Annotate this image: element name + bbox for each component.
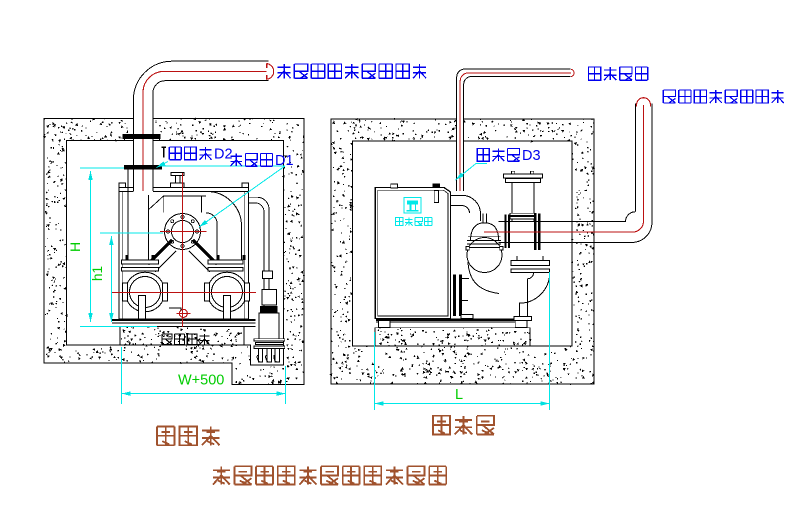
svg-text:D2: D2: [214, 147, 233, 163]
svg-text:h1: h1: [90, 266, 105, 281]
svg-text:H: H: [67, 242, 83, 252]
svg-text:L: L: [455, 387, 463, 403]
svg-text:D3: D3: [522, 148, 541, 164]
svg-text:D1: D1: [275, 153, 294, 169]
svg-text:W+500: W+500: [178, 373, 224, 389]
